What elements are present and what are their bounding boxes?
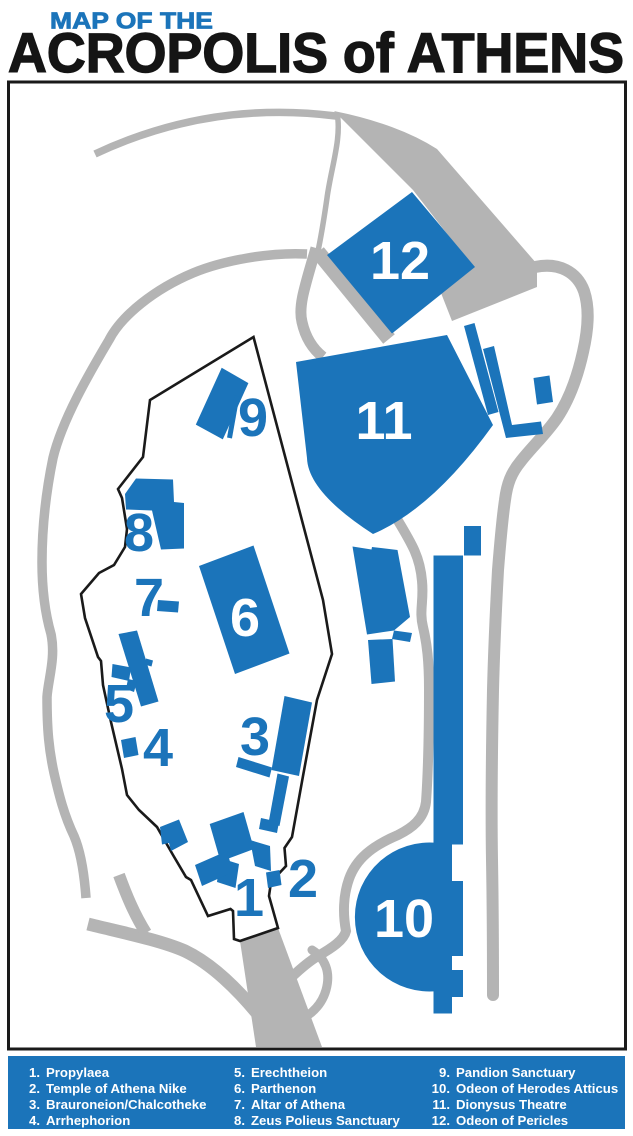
svg-text:1: 1 [234,868,264,928]
svg-text:2: 2 [288,849,318,909]
svg-text:5.: 5. [234,1065,245,1080]
svg-text:Dionysus Theatre: Dionysus Theatre [456,1097,567,1112]
svg-text:12.: 12. [432,1113,450,1128]
svg-text:4: 4 [143,718,173,778]
svg-text:7.: 7. [234,1097,245,1112]
svg-text:6.: 6. [234,1081,245,1096]
svg-text:3: 3 [240,707,270,767]
svg-text:Odeon of Herodes Atticus: Odeon of Herodes Atticus [456,1081,618,1096]
svg-text:11.: 11. [432,1097,450,1112]
svg-text:10: 10 [374,889,434,949]
svg-text:12: 12 [370,231,430,291]
svg-text:9.: 9. [439,1065,450,1080]
svg-text:8.: 8. [234,1113,245,1128]
svg-text:2.: 2. [29,1081,40,1096]
svg-text:Zeus Polieus Sanctuary: Zeus Polieus Sanctuary [251,1113,400,1128]
svg-text:Altar of Athena: Altar of Athena [251,1097,346,1112]
svg-text:Erechtheion: Erechtheion [251,1065,327,1080]
svg-text:9: 9 [238,388,268,448]
svg-text:ACROPOLIS of ATHENS: ACROPOLIS of ATHENS [8,21,624,84]
svg-text:Brauroneion/Chalcotheke: Brauroneion/Chalcotheke [46,1097,206,1112]
svg-text:Pandion Sanctuary: Pandion Sanctuary [456,1065,576,1080]
svg-text:4.: 4. [29,1113,40,1128]
svg-text:5: 5 [104,674,134,734]
svg-text:8: 8 [124,503,154,563]
svg-text:3.: 3. [29,1097,40,1112]
svg-text:Arrhephorion: Arrhephorion [46,1113,130,1128]
svg-text:7: 7 [134,568,164,628]
svg-text:Odeon of Pericles: Odeon of Pericles [456,1113,568,1128]
svg-text:Temple of Athena Nike: Temple of Athena Nike [46,1081,187,1096]
svg-text:Propylaea: Propylaea [46,1065,110,1080]
svg-text:11: 11 [355,391,412,451]
svg-text:6: 6 [230,588,260,648]
svg-text:10.: 10. [432,1081,450,1096]
svg-text:1.: 1. [29,1065,40,1080]
svg-text:Parthenon: Parthenon [251,1081,316,1096]
